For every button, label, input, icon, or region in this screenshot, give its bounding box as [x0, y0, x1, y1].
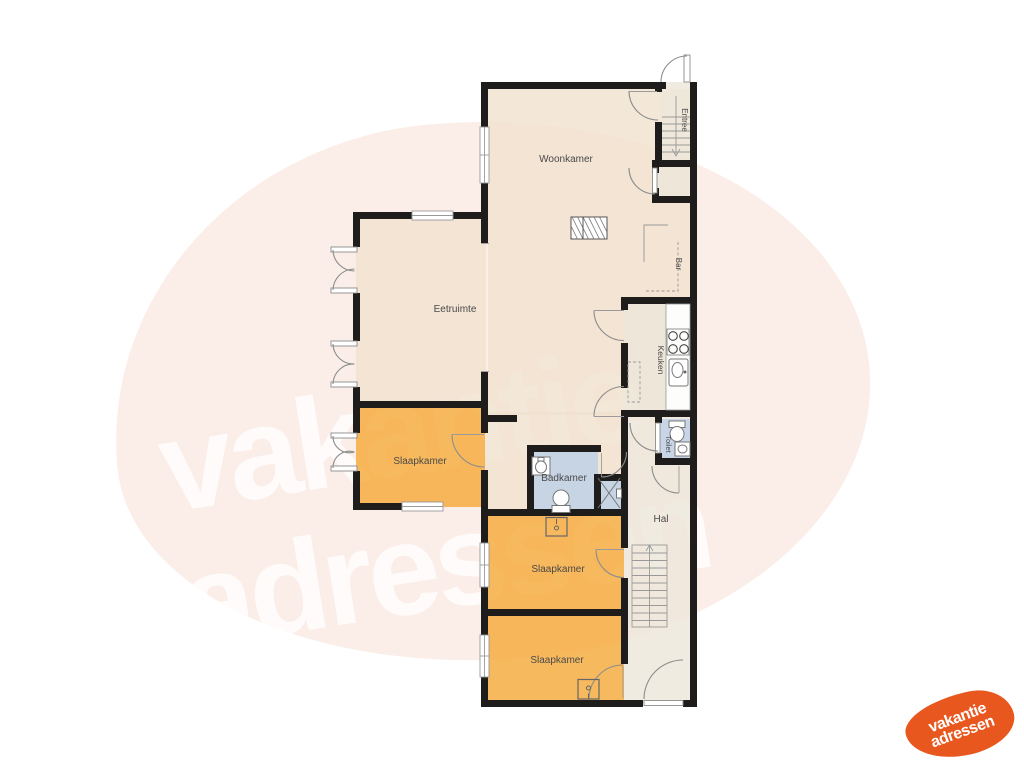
bathroom-toilet-icon: [552, 490, 570, 513]
window: [480, 127, 489, 183]
label-slaapkamer-left: Slaapkamer: [393, 456, 447, 467]
french-door: [331, 247, 357, 293]
window: [480, 635, 489, 677]
label-bar: Bar: [674, 258, 683, 271]
floorplan-svg: Woonkamer Eetruimte Slaapkamer Badkamer …: [320, 30, 720, 720]
toilet-sink-icon: [675, 442, 690, 456]
label-hal: Hal: [653, 514, 668, 525]
entrance-door: [661, 55, 690, 82]
label-woonkamer: Woonkamer: [539, 154, 593, 165]
french-door: [331, 433, 357, 471]
page: { "floorplan": { "rooms": { "woonkamer":…: [0, 0, 1024, 768]
kitchen-sink-icon: [669, 359, 688, 386]
window: [480, 543, 489, 587]
label-eetruimte: Eetruimte: [434, 304, 477, 315]
label-entree: Entree: [680, 108, 689, 132]
label-slaapkamer-middle: Slaapkamer: [531, 564, 585, 575]
window: [402, 502, 443, 511]
logo-text: vakantie adressen: [924, 700, 996, 750]
logo-blob: vakantie adressen: [900, 683, 1020, 767]
label-badkamer: Badkamer: [541, 473, 587, 484]
french-door: [331, 341, 357, 387]
room-slaapkamer-middle: [484, 512, 624, 612]
label-slaapkamer-bottom: Slaapkamer: [530, 655, 584, 666]
label-toilet: Toilet: [664, 435, 673, 453]
brand-logo: vakantie adressen: [895, 688, 1024, 766]
window: [412, 211, 453, 220]
label-keuken: Keuken: [656, 346, 666, 375]
room-closet: [655, 163, 692, 199]
